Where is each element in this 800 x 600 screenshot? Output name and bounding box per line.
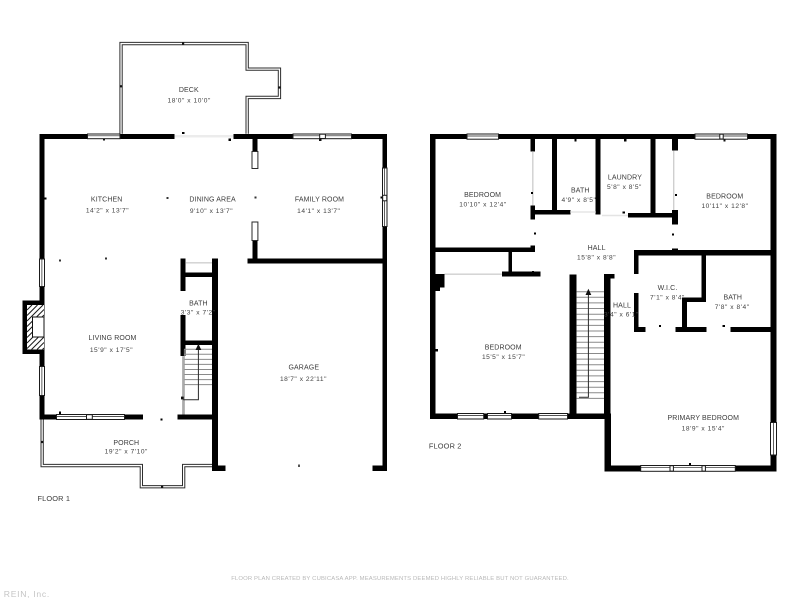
- svg-text:10'11" x 12'8": 10'11" x 12'8": [701, 203, 748, 210]
- svg-text:KITCHEN: KITCHEN: [91, 197, 123, 204]
- svg-text:BEDROOM: BEDROOM: [464, 192, 501, 199]
- svg-text:18'7" x 22'11": 18'7" x 22'11": [280, 376, 327, 383]
- svg-text:BEDROOM: BEDROOM: [706, 194, 743, 201]
- svg-text:5'8" x 8'5": 5'8" x 8'5": [607, 184, 642, 191]
- svg-text:REIN, Inc.: REIN, Inc.: [4, 589, 50, 599]
- svg-text:3'4" x 6'1": 3'4" x 6'1": [604, 311, 639, 318]
- svg-text:4'9" x 8'5": 4'9" x 8'5": [561, 197, 596, 204]
- svg-text:BEDROOM: BEDROOM: [485, 345, 522, 352]
- svg-text:BATH: BATH: [723, 295, 742, 302]
- svg-text:18'9" x 15'4": 18'9" x 15'4": [682, 425, 725, 432]
- svg-text:14'2" x 13'7": 14'2" x 13'7": [86, 207, 129, 214]
- svg-text:DINING AREA: DINING AREA: [189, 197, 236, 204]
- svg-text:GARAGE: GARAGE: [288, 365, 319, 372]
- svg-text:LIVING ROOM: LIVING ROOM: [89, 335, 137, 342]
- svg-text:FLOOR PLAN CREATED BY CUBICASA: FLOOR PLAN CREATED BY CUBICASA APP. MEAS…: [231, 576, 569, 582]
- svg-text:PORCH: PORCH: [113, 440, 139, 447]
- svg-text:FLOOR 2: FLOOR 2: [429, 442, 462, 451]
- svg-text:15'9" x 17'5": 15'9" x 17'5": [90, 347, 133, 354]
- svg-text:FAMILY ROOM: FAMILY ROOM: [295, 197, 344, 204]
- svg-text:7'1" x 8'4": 7'1" x 8'4": [650, 295, 685, 302]
- svg-text:LAUNDRY: LAUNDRY: [608, 174, 642, 181]
- svg-text:10'10" x 12'4": 10'10" x 12'4": [459, 201, 507, 208]
- svg-text:15'5" x 15'7": 15'5" x 15'7": [482, 354, 525, 361]
- svg-text:19'2" x 7'10": 19'2" x 7'10": [105, 449, 148, 456]
- svg-text:3'3" x 7'2": 3'3" x 7'2": [181, 310, 216, 317]
- svg-text:DECK: DECK: [179, 87, 199, 94]
- svg-text:7'8" x 8'4": 7'8" x 8'4": [715, 304, 750, 311]
- svg-text:W.I.C.: W.I.C.: [658, 285, 678, 292]
- svg-text:15'8" x 8'8": 15'8" x 8'8": [577, 255, 616, 262]
- svg-text:18'0" x 10'0": 18'0" x 10'0": [168, 98, 211, 105]
- svg-text:HALL: HALL: [613, 303, 631, 310]
- svg-text:BATH: BATH: [571, 188, 590, 195]
- svg-text:14'1" x 13'7": 14'1" x 13'7": [297, 208, 340, 215]
- svg-text:BATH: BATH: [189, 300, 208, 307]
- svg-text:PRIMARY BEDROOM: PRIMARY BEDROOM: [668, 415, 740, 422]
- svg-text:9'10" x 13'7": 9'10" x 13'7": [190, 208, 233, 215]
- svg-text:FLOOR 1: FLOOR 1: [37, 494, 70, 503]
- svg-text:HALL: HALL: [588, 245, 606, 252]
